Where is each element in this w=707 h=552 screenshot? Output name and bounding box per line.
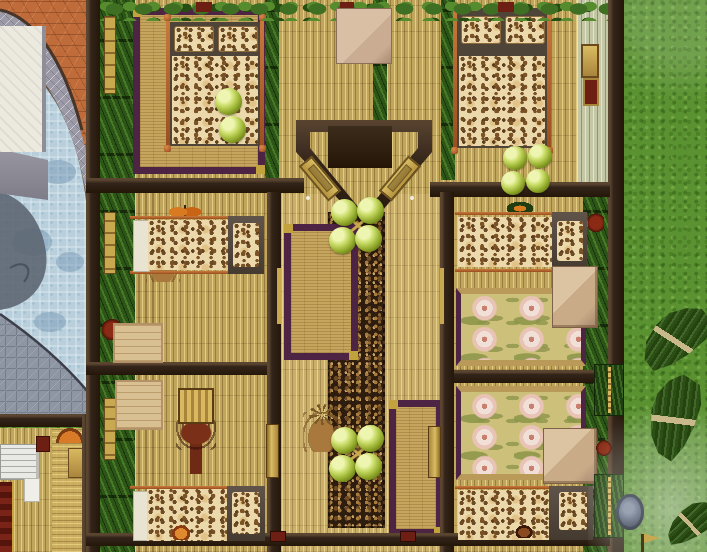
globe-lamp[interactable]	[331, 427, 358, 454]
globe-lamp[interactable]	[355, 453, 382, 480]
wall-top-left-segment	[86, 178, 304, 193]
door-handle	[306, 196, 310, 200]
globe-lamp[interactable]	[501, 171, 525, 195]
red-planter	[498, 2, 514, 12]
globe-lamp[interactable]	[329, 227, 356, 254]
double-bed-top-left[interactable]	[166, 16, 264, 150]
gold-wardrobe[interactable]	[178, 388, 214, 424]
round-grill[interactable]	[616, 494, 644, 530]
globe-lamp[interactable]	[355, 225, 382, 252]
wardrobe-chimney[interactable]	[336, 8, 392, 64]
globe-lamp[interactable]	[528, 144, 552, 168]
gold-frame-left	[266, 424, 279, 478]
globe-lamp[interactable]	[215, 88, 242, 115]
wall-left	[86, 0, 100, 552]
globe-lamp[interactable]	[357, 425, 384, 452]
single-bed-mid-left-lower[interactable]	[130, 486, 265, 542]
single-bed-mid-right-upper[interactable]	[455, 212, 587, 272]
red-planter	[196, 2, 212, 12]
wall-mid-left	[86, 362, 281, 375]
globe-lamp[interactable]	[329, 455, 356, 482]
globe-lamp[interactable]	[357, 197, 384, 224]
hall-door-trim-left[interactable]	[277, 268, 281, 324]
bowl-shelf	[56, 428, 84, 443]
framed-picture	[583, 78, 599, 106]
wall-mid-right	[446, 370, 610, 383]
leaf-divider-1	[265, 0, 279, 180]
neighbor-building	[0, 26, 46, 152]
stove[interactable]	[0, 444, 40, 480]
cabana-picture	[36, 436, 50, 452]
wood-table[interactable]	[113, 323, 163, 363]
globe-lamp[interactable]	[503, 146, 527, 170]
stairwell[interactable]	[328, 126, 392, 168]
bar-counter[interactable]	[0, 482, 14, 552]
brown-dish	[514, 524, 534, 538]
bamboo-ladder-decor	[104, 16, 116, 94]
dresser[interactable]	[552, 266, 598, 328]
single-bed-mid-right-lower[interactable]	[455, 486, 598, 542]
cabana-wall-panel	[52, 428, 84, 552]
door-handle	[410, 196, 414, 200]
globe-lamp[interactable]	[219, 116, 246, 143]
flag-pole	[641, 534, 644, 552]
framed-picture	[581, 44, 599, 78]
tiki-palm-motif	[176, 420, 216, 474]
wall-hallway-right	[440, 192, 454, 552]
wall-hallway-left	[267, 192, 281, 552]
palm-frond	[641, 302, 707, 384]
hall-door-trim-right[interactable]	[440, 268, 444, 324]
orange-dish	[170, 524, 192, 540]
wall-sconce	[270, 531, 286, 542]
globe-lamp[interactable]	[331, 199, 358, 226]
bamboo-ladder-decor	[104, 212, 116, 274]
wall-sconce	[400, 531, 416, 542]
cabana-paper	[24, 478, 40, 502]
game-viewport	[0, 0, 707, 552]
wood-table[interactable]	[115, 380, 163, 430]
single-bed-mid-left-upper[interactable]	[130, 216, 264, 274]
red-flower-decor	[588, 212, 604, 236]
double-bed-top-right[interactable]	[453, 4, 551, 152]
gold-frame-right	[428, 426, 441, 478]
globe-lamp[interactable]	[526, 169, 550, 193]
